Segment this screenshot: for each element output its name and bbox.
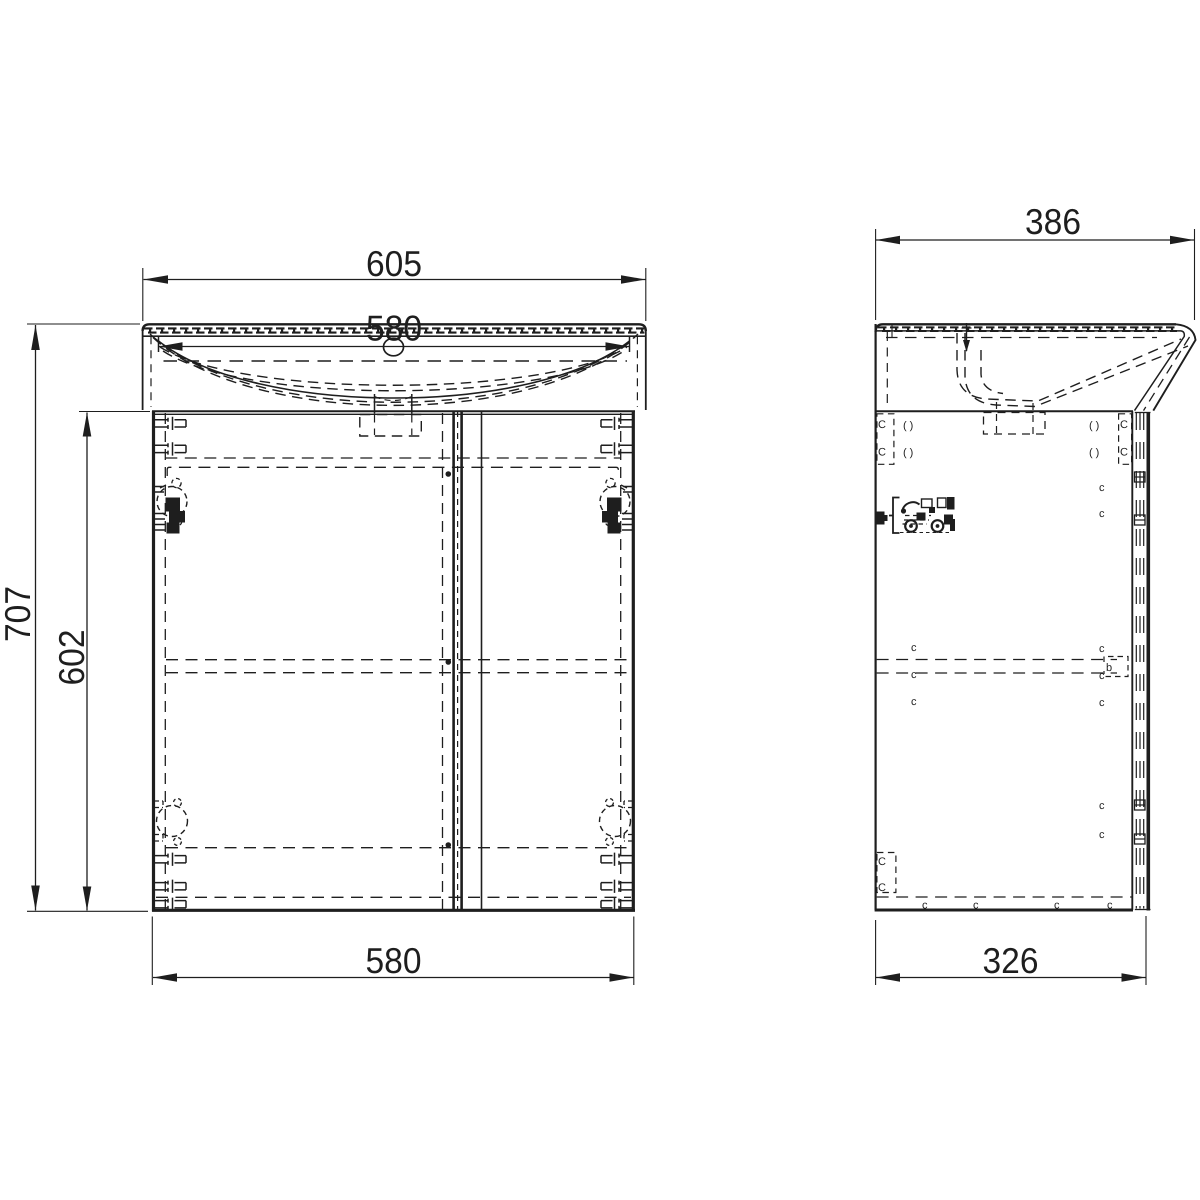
svg-text:(): () (903, 447, 916, 459)
svg-text:b: b (1106, 662, 1112, 674)
svg-text:c: c (1099, 800, 1105, 812)
svg-text:c: c (1099, 482, 1105, 494)
svg-text:c: c (911, 696, 917, 708)
svg-text:C: C (1120, 447, 1128, 459)
svg-text:C: C (878, 419, 886, 431)
svg-text:605: 605 (366, 243, 422, 284)
svg-text:c: c (1099, 670, 1105, 682)
svg-text:707: 707 (0, 586, 38, 642)
svg-text:c: c (911, 642, 917, 654)
svg-text:C: C (878, 882, 886, 894)
svg-text:c: c (1107, 900, 1113, 912)
svg-text:C: C (878, 856, 886, 868)
svg-text:c: c (1099, 508, 1105, 520)
svg-text:C: C (1120, 419, 1128, 431)
svg-text:c: c (1099, 697, 1105, 709)
svg-text:c: c (922, 900, 928, 912)
svg-text:(): () (903, 420, 916, 432)
svg-text:c: c (1054, 900, 1060, 912)
svg-text:c: c (1099, 643, 1105, 655)
svg-text:C: C (878, 447, 886, 459)
svg-text:580: 580 (366, 308, 422, 349)
svg-text:c: c (911, 669, 917, 681)
svg-text:386: 386 (1025, 201, 1081, 242)
svg-text:580: 580 (366, 940, 422, 981)
svg-text:326: 326 (983, 940, 1039, 981)
svg-text:(): () (1089, 447, 1102, 459)
svg-text:(): () (1089, 420, 1102, 432)
svg-text:602: 602 (51, 630, 92, 686)
svg-text:c: c (973, 900, 979, 912)
svg-text:c: c (1099, 829, 1105, 841)
